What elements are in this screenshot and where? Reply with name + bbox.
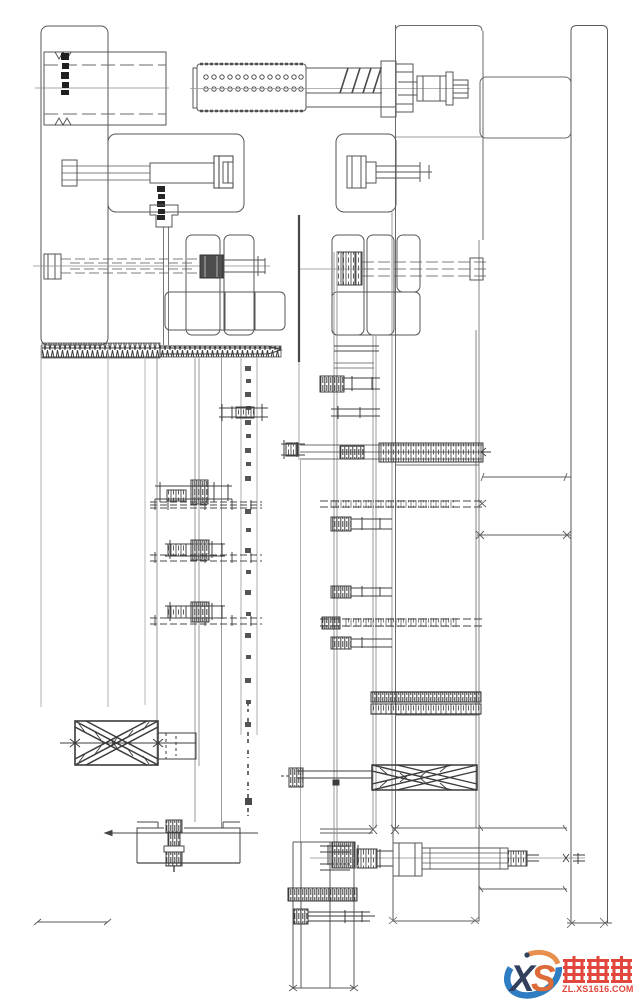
svg-text:ZL.XS1616.COM: ZL.XS1616.COM (562, 984, 634, 994)
svg-text:S: S (531, 958, 556, 999)
